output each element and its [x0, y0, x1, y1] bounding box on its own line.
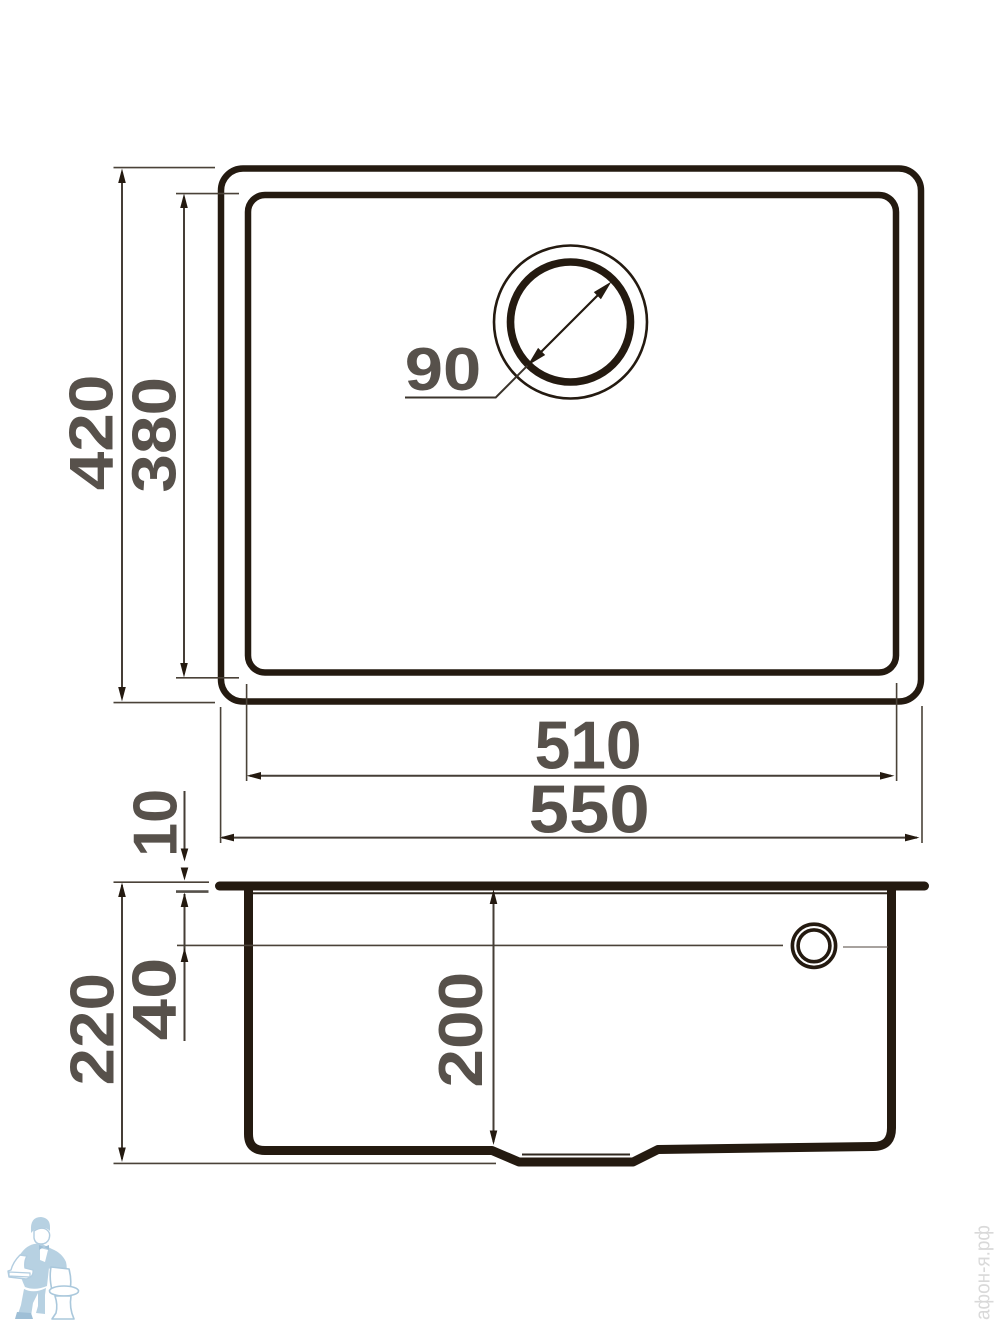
svg-text:550: 550 — [529, 772, 650, 848]
svg-text:420: 420 — [57, 375, 127, 491]
svg-text:380: 380 — [119, 377, 189, 493]
svg-text:40: 40 — [119, 958, 189, 1041]
svg-text:90: 90 — [405, 336, 482, 403]
svg-text:10: 10 — [120, 789, 190, 857]
svg-text:200: 200 — [426, 972, 496, 1088]
svg-text:афон-я.рф: афон-я.рф — [973, 1225, 995, 1320]
svg-text:220: 220 — [58, 973, 128, 1085]
